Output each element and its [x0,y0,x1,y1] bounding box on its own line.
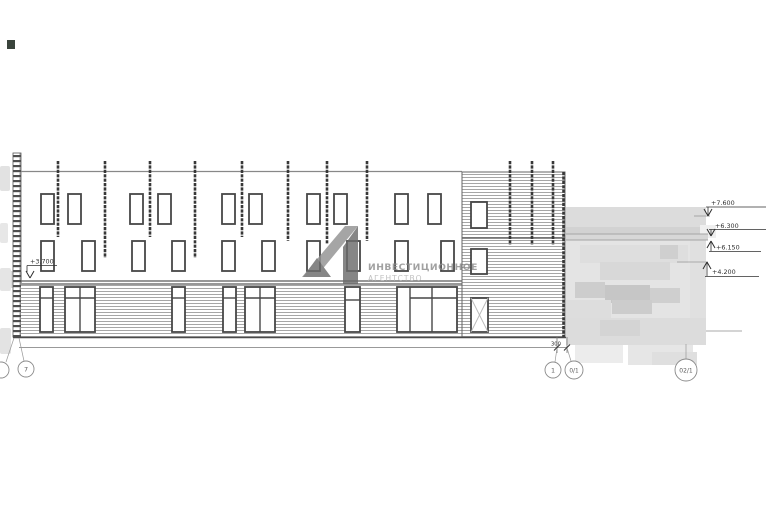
elevation-drawing: +3.700 +7.600 +6.300 +6.150 [0,0,770,510]
level-label: +6.150 [716,244,740,252]
down-arrow-icon [26,271,34,278]
window [158,194,171,224]
dimension-line: 300 [19,337,570,353]
storefront-window [40,287,53,332]
brick-pilaster [13,153,21,337]
watermark-line1: ИНВЕСТИЦИОННОЕ [368,262,478,273]
window [471,202,487,228]
window [334,194,347,224]
axis-label: 02/1 [679,368,693,375]
elevation-mark-6150: +6.150 [707,241,761,252]
window [249,194,262,224]
window [130,194,143,224]
storefront-door [345,287,360,332]
window [41,241,54,271]
screenshot-artifact [7,40,15,49]
window [222,194,235,224]
level-label: +7.600 [711,199,735,207]
window [41,194,54,224]
canopy-bar [566,234,708,240]
window [428,194,441,224]
level-label: +6.300 [715,222,739,230]
window [262,241,275,271]
level-label: +3.700 [30,258,54,266]
dimension-value: 300 [551,342,561,348]
axis-label: 1 [551,367,555,375]
window [307,194,320,224]
axis-label: 7 [24,366,28,374]
storefront-window [172,287,185,332]
window [395,194,408,224]
storefront-window [223,287,236,332]
third-floor-windows [41,194,487,228]
window [222,241,235,271]
axis-label: 0/1 [569,369,579,375]
window [82,241,95,271]
watermark-line2: АГЕНТСТВО [368,274,423,283]
level-label: +4.200 [712,268,736,276]
window [132,241,145,271]
redaction-mosaic [566,207,716,365]
window [68,194,81,224]
drawing-canvas: +3.700 +7.600 +6.300 +6.150 [0,0,770,510]
axis-bubble-edge [0,362,9,378]
window [172,241,185,271]
storefront-window [397,287,457,332]
